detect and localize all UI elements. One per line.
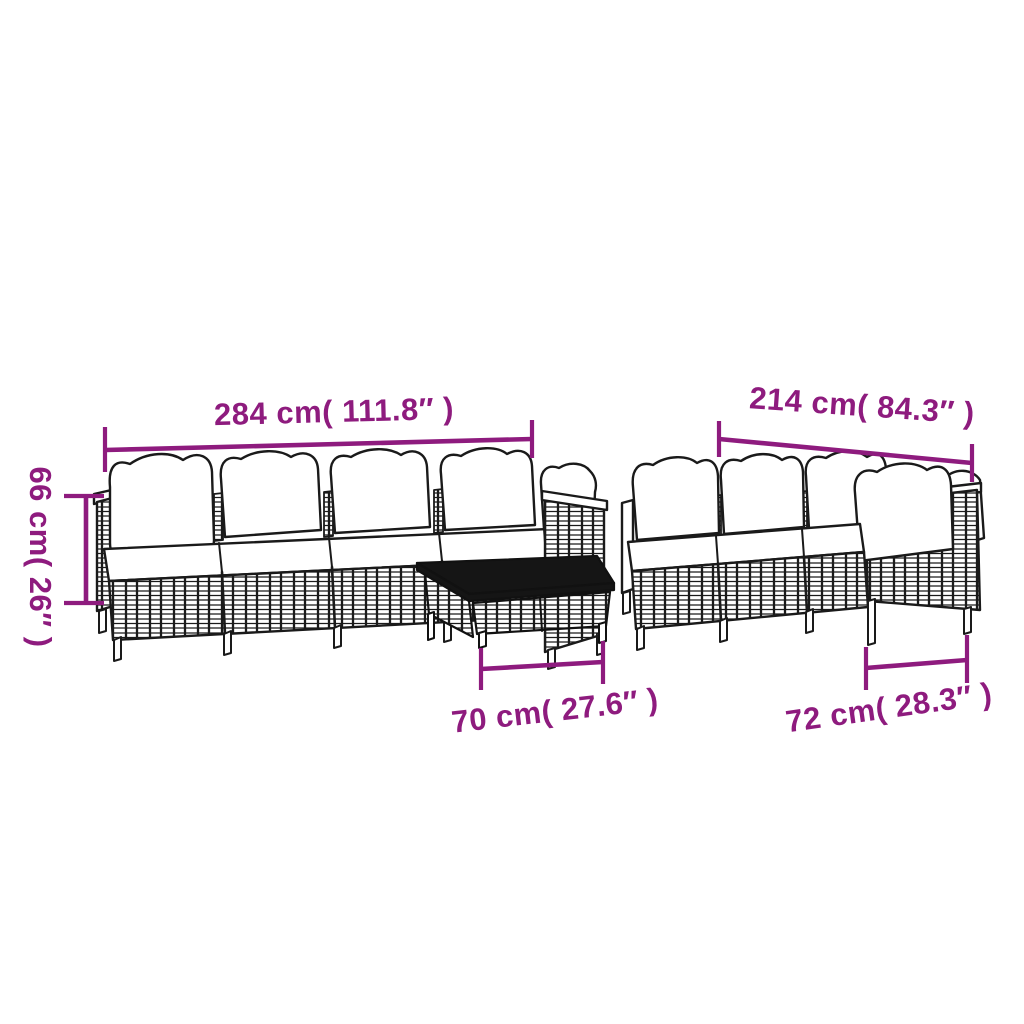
corner-front-cushion (855, 463, 953, 561)
product-dimension-diagram: 284 cm( 111.8″ ) 214 cm( 84.3″ ) 66 cm( … (0, 0, 1024, 1024)
dimension-line-70cm (481, 641, 603, 690)
dimension-label-height: 66 cm( 26″ ) (22, 466, 58, 647)
furniture-illustration (0, 0, 1024, 1024)
back-cushion (441, 448, 535, 530)
back-cushion (721, 454, 804, 534)
dimension-label-sofa-long-width: 284 cm( 111.8″ ) (214, 391, 455, 433)
back-cushion (221, 451, 321, 537)
back-cushion (110, 454, 214, 556)
back-cushion (633, 457, 719, 540)
right-sofa-drawing (622, 451, 984, 650)
back-cushion (331, 449, 430, 533)
